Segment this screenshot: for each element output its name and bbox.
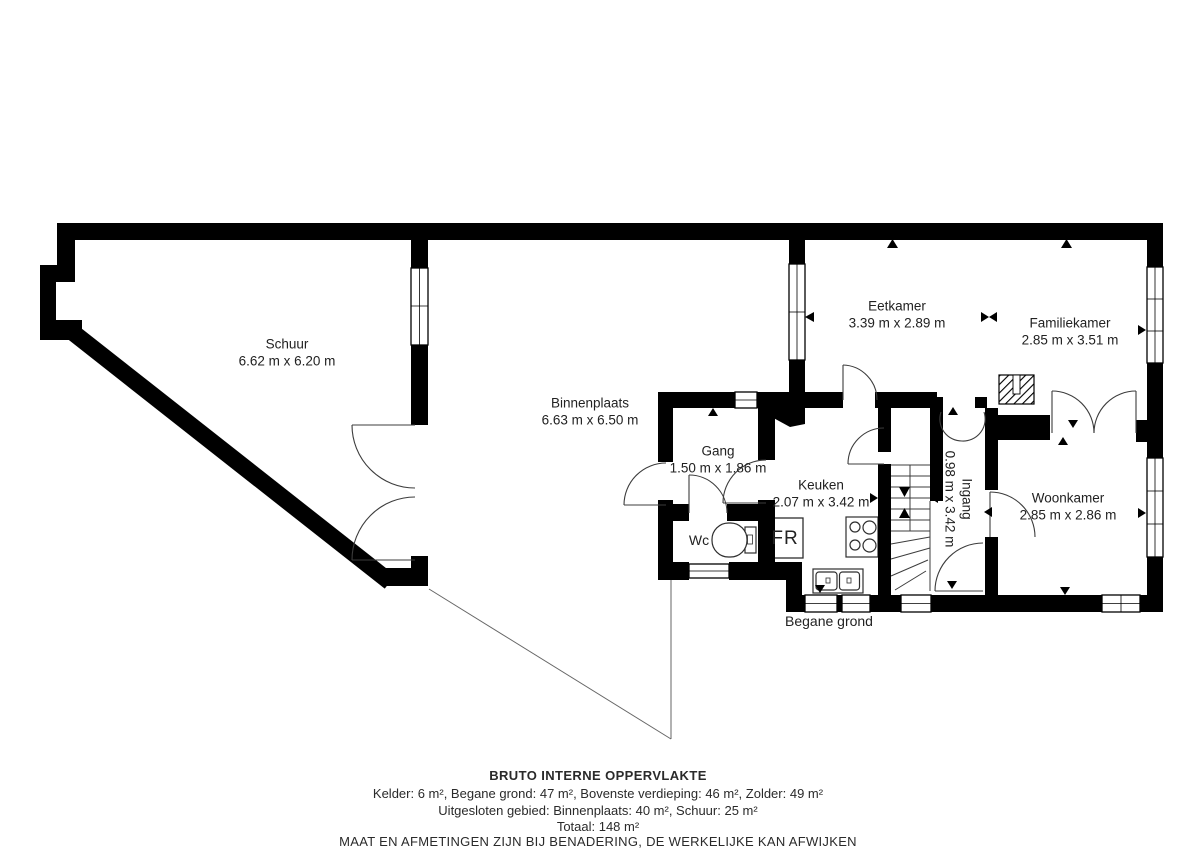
footer-areas-line: Kelder: 6 m², Begane grond: 47 m², Boven… <box>0 786 1196 801</box>
window-schuur-east <box>411 268 428 345</box>
footer-total-line: Totaal: 148 m² <box>0 819 1196 834</box>
door-ingang-entry <box>940 412 985 441</box>
room-label-familiekamer: Familiekamer 2.85 m x 3.51 m <box>1022 315 1119 350</box>
window-familiekamer-east <box>1147 267 1163 363</box>
window-eetkamer-west <box>789 264 805 360</box>
window-wc-south <box>689 564 729 578</box>
floor-plan-page: Schuur 6.62 m x 6.20 m Binnenplaats 6.63… <box>0 0 1200 848</box>
room-label-schuur: Schuur 6.62 m x 6.20 m <box>239 336 336 371</box>
stairs-direction-arrows <box>899 487 910 518</box>
property-boundary-lines <box>429 580 671 739</box>
room-label-woonkamer: Woonkamer 2.85 m x 2.86 m <box>1020 490 1117 525</box>
window-woonkamer-south <box>1102 595 1140 612</box>
window-keuken-south-2 <box>842 595 870 612</box>
fridge-label: FR <box>771 528 798 550</box>
room-label-eetkamer: Eetkamer 3.39 m x 2.89 m <box>849 298 946 333</box>
room-label-keuken: Keuken 2.07 m x 3.42 m <box>773 477 870 512</box>
door-eetkamer <box>843 365 877 400</box>
footer-title: BRUTO INTERNE OPPERVLAKTE <box>0 768 1196 783</box>
door-gang-exterior <box>624 463 666 505</box>
window-stairs-south <box>901 595 931 612</box>
toilet-icon <box>712 523 756 557</box>
stove-icon <box>846 517 878 557</box>
door-ingang-rear <box>935 543 983 591</box>
chimney-icon <box>999 375 1034 404</box>
room-label-gang: Gang 1.50 m x 1.86 m <box>670 443 767 478</box>
wc-label: Wc <box>689 532 709 548</box>
room-label-binnenplaats: Binnenplaats 6.63 m x 6.50 m <box>542 395 639 430</box>
staircase <box>891 465 930 591</box>
door-gang-wc <box>689 475 727 513</box>
footer-excluded-line: Uitgesloten gebied: Binnenplaats: 40 m²,… <box>0 803 1196 818</box>
window-gang-north <box>735 392 757 408</box>
door-familiekamer-double <box>1052 391 1136 433</box>
door-schuur-double <box>352 425 415 560</box>
floor-name-label: Begane grond <box>785 613 873 629</box>
footer-disclaimer: MAAT EN AFMETINGEN ZIJN BIJ BENADERING, … <box>0 834 1196 848</box>
window-woonkamer-east <box>1147 458 1163 557</box>
room-label-ingang: Ingang 0.98 m x 3.42 m <box>941 451 976 548</box>
window-keuken-south-1 <box>805 595 837 612</box>
